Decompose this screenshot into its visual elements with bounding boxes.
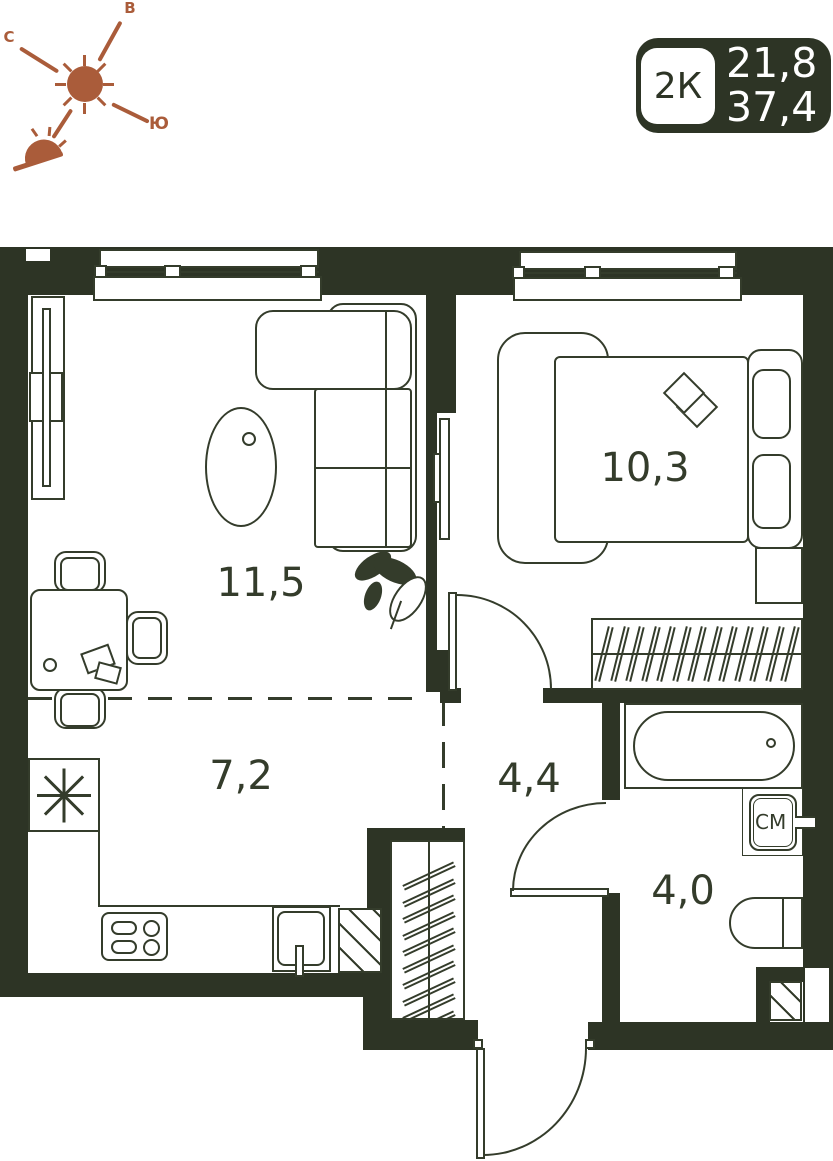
- kitchen-vent-shaft: [338, 908, 382, 973]
- bed-pillow: [752, 369, 791, 439]
- washing-machine-label: СМ: [755, 810, 786, 834]
- window-inner-sill: [93, 276, 322, 301]
- burner: [111, 940, 137, 954]
- wall-right: [803, 247, 833, 1050]
- washer-pipe: [795, 816, 815, 829]
- apartment-type-badge: 2К 21,8 37,4: [636, 38, 831, 133]
- compass-north-label: С: [3, 28, 14, 46]
- hallway-wardrobe: [390, 840, 465, 1020]
- table-decor: [242, 432, 256, 446]
- chair-inner: [60, 693, 100, 727]
- window-inner-sill: [513, 277, 742, 301]
- kitchen-area-label: 7,2: [209, 753, 273, 799]
- wall-partition-central-thin: [426, 412, 437, 654]
- compass-south-label: Ю: [149, 114, 169, 134]
- burner: [143, 939, 160, 956]
- tv-screen: [42, 308, 51, 487]
- living-area-value: 21,8: [726, 41, 817, 85]
- compass-line-north: [19, 46, 59, 73]
- sink-faucet: [295, 945, 304, 977]
- kitchen-counter-edge-vertical: [98, 832, 100, 907]
- door-leaf: [448, 592, 457, 691]
- bedroom-area-label: 10,3: [600, 445, 689, 491]
- wall-vent-left: [756, 982, 770, 1022]
- door-swing-arc: [483, 1048, 587, 1156]
- bathtub-drain: [766, 738, 776, 748]
- door-swing-arc: [512, 802, 606, 891]
- window-outer-sill: [99, 249, 319, 268]
- wall-vent-top: [756, 967, 803, 982]
- compass-line-west: [51, 108, 73, 139]
- window-frame-line: [99, 271, 319, 273]
- compass-line-east: [97, 21, 122, 62]
- burner: [111, 921, 137, 935]
- wall-hallway-bottom-left: [365, 1020, 478, 1050]
- bathroom-vent-shaft: [769, 981, 802, 1021]
- bed-pillow: [752, 454, 791, 529]
- wall-corner-notch: [26, 249, 50, 261]
- cup-decor: [43, 658, 57, 672]
- wall-right-notch: [805, 968, 829, 1022]
- wall-hallway-bottom-right: [588, 1022, 833, 1050]
- apartment-type-label: 2К: [641, 48, 715, 124]
- wall-partition-central-top: [426, 293, 456, 413]
- floor-plan: С В Ю 2К 21,8 37,4: [0, 0, 833, 1161]
- wall-bathroom-left-upper: [602, 703, 620, 800]
- zone-boundary-dashed-vertical: [442, 700, 445, 828]
- compass-line-south: [111, 102, 150, 124]
- bedroom-wardrobe: [591, 618, 803, 690]
- wall-kitchen-bottom: [0, 973, 365, 997]
- wall-left: [0, 247, 28, 997]
- hallway-area-label: 4,4: [497, 756, 561, 802]
- chair-inner: [132, 617, 162, 659]
- compass-east-label: В: [124, 0, 135, 17]
- chair-inner: [60, 557, 100, 591]
- wall-bedroom-bottom: [543, 688, 833, 703]
- fridge-marker: [28, 758, 100, 832]
- window-frame-line: [517, 272, 737, 274]
- total-area-value: 37,4: [726, 85, 817, 129]
- burner: [143, 920, 160, 937]
- sofa-chaise: [255, 310, 412, 390]
- bathroom-area-label: 4,0: [651, 868, 715, 914]
- wall-bathroom-left-lower: [602, 893, 620, 1022]
- sofa-back-line: [385, 310, 387, 548]
- stove: [101, 912, 168, 961]
- sofa-seat-divider: [314, 467, 412, 469]
- living-room-area-label: 11,5: [216, 560, 305, 606]
- door-swing-arc: [457, 594, 552, 689]
- nightstand: [755, 547, 803, 604]
- window-outer-sill: [519, 251, 737, 270]
